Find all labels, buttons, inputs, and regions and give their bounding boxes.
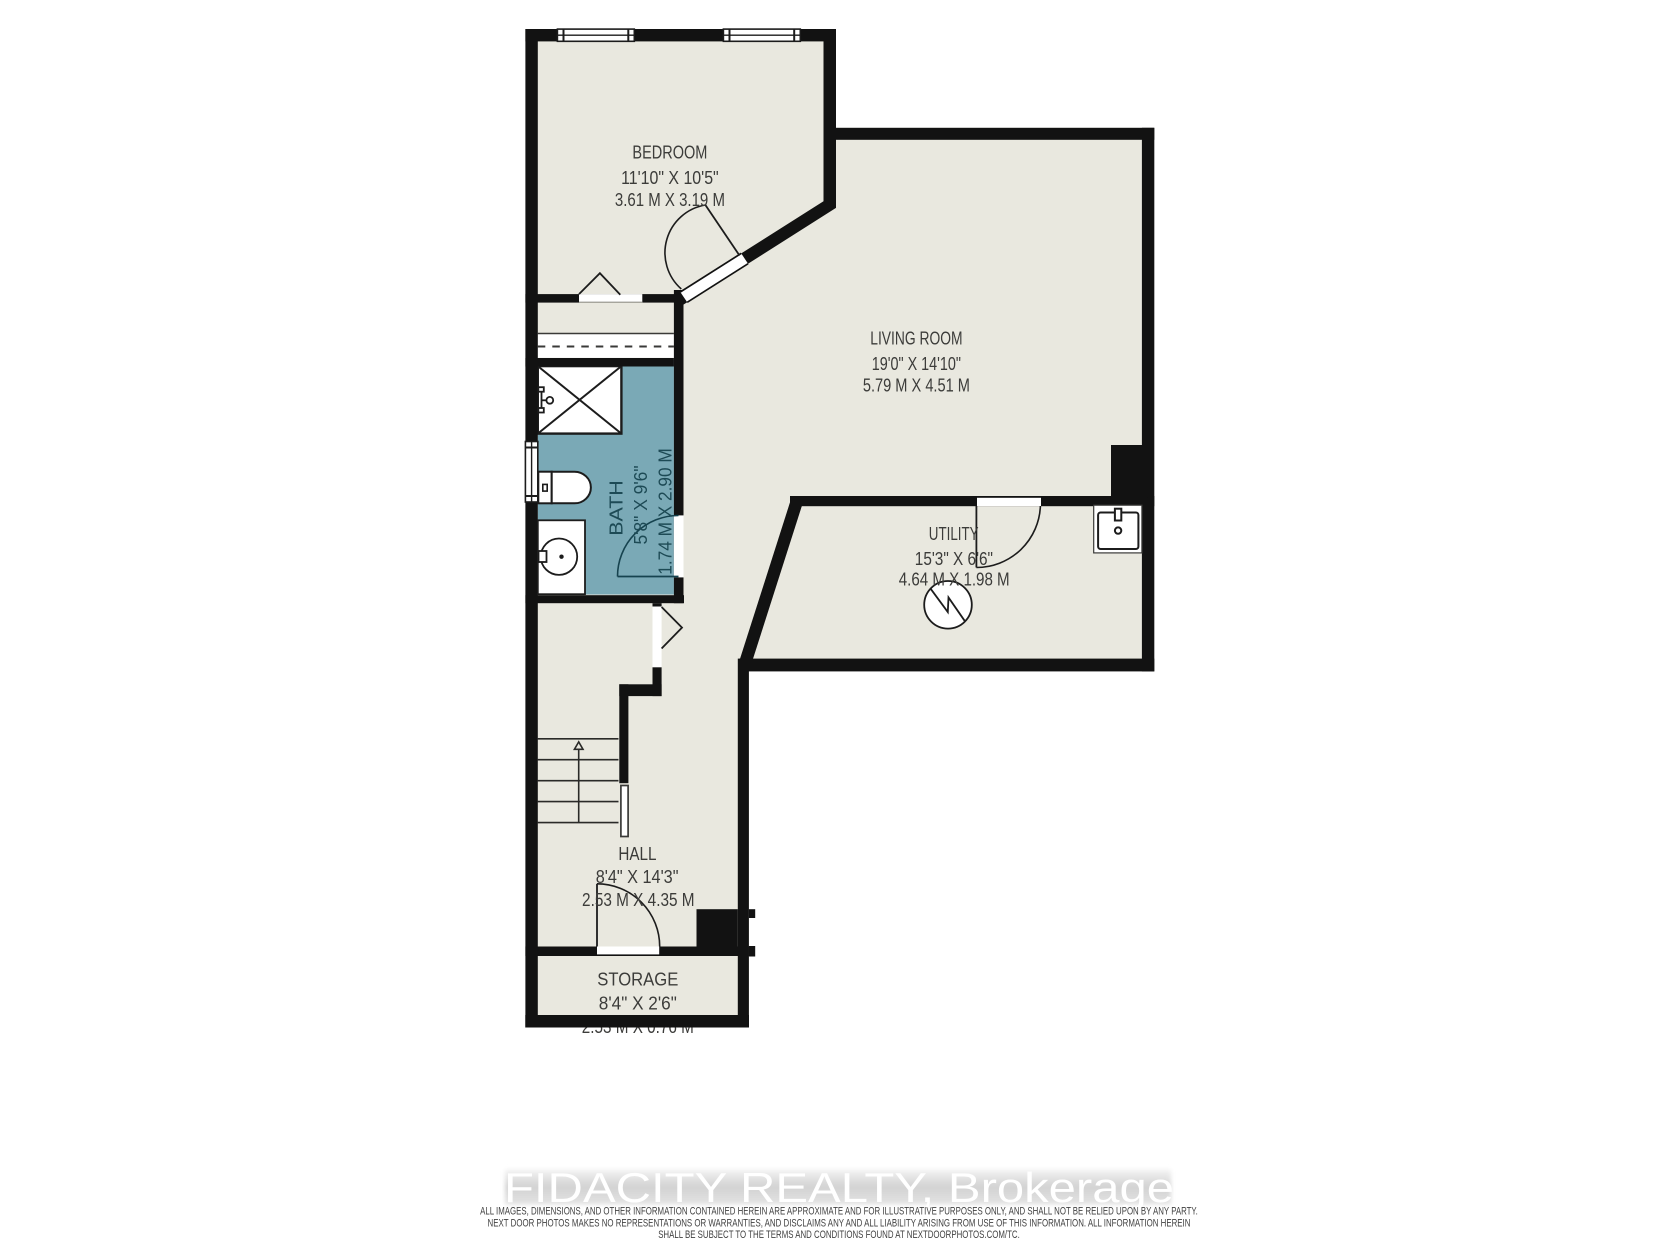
svg-text:SHALL BE SUBJECT TO THE TERMS: SHALL BE SUBJECT TO THE TERMS AND CONDIT… bbox=[658, 1229, 1020, 1241]
svg-text:4.64 M X 1.98 M: 4.64 M X 1.98 M bbox=[899, 569, 1010, 590]
svg-text:BEDROOM: BEDROOM bbox=[632, 142, 707, 163]
svg-text:1.74 M X 2.90 M: 1.74 M X 2.90 M bbox=[654, 448, 675, 575]
svg-text:BATH: BATH bbox=[606, 480, 627, 536]
svg-text:STORAGE: STORAGE bbox=[597, 968, 678, 989]
svg-text:5'8" X 9'6": 5'8" X 9'6" bbox=[630, 466, 651, 545]
svg-text:HALL: HALL bbox=[618, 843, 656, 864]
svg-text:2.53 M X 4.35 M: 2.53 M X 4.35 M bbox=[582, 889, 695, 910]
svg-text:11'10" X 10'5": 11'10" X 10'5" bbox=[621, 167, 719, 188]
svg-text:3.61 M X 3.19 M: 3.61 M X 3.19 M bbox=[615, 189, 725, 210]
svg-text:NEXT DOOR PHOTOS MAKES NO REPR: NEXT DOOR PHOTOS MAKES NO REPRESENTATION… bbox=[488, 1217, 1191, 1229]
svg-text:8'4" X 14'3": 8'4" X 14'3" bbox=[596, 866, 679, 887]
svg-text:LIVING ROOM: LIVING ROOM bbox=[870, 327, 962, 348]
svg-text:5.79 M X 4.51 M: 5.79 M X 4.51 M bbox=[863, 374, 970, 395]
svg-text:ALL IMAGES, DIMENSIONS, AND OT: ALL IMAGES, DIMENSIONS, AND OTHER INFORM… bbox=[480, 1205, 1198, 1217]
svg-text:19'0" X 14'10": 19'0" X 14'10" bbox=[872, 353, 961, 374]
svg-text:8'4" X 2'6": 8'4" X 2'6" bbox=[599, 993, 677, 1014]
svg-text:15'3" X 6'6": 15'3" X 6'6" bbox=[915, 548, 993, 569]
svg-text:FIDACITY REALTY, Brokerage: FIDACITY REALTY, Brokerage bbox=[504, 1164, 1174, 1211]
svg-text:UTILITY: UTILITY bbox=[929, 523, 979, 544]
